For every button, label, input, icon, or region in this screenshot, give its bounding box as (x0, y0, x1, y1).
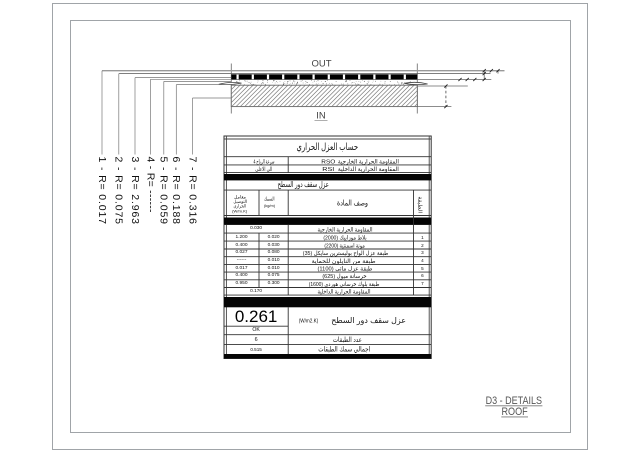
svg-text:RSI: RSI (322, 167, 335, 173)
svg-text:السمك: السمك (264, 197, 275, 203)
svg-text:OUT: OUT (311, 59, 331, 70)
svg-text:المقاومة الحرارية الداخلية: المقاومة الحرارية الداخلية (318, 289, 371, 295)
svg-text:الى الاعلى: الى الاعلى (255, 167, 272, 173)
svg-text:طبقة عزل مائي (1100): طبقة عزل مائي (1100) (318, 266, 374, 272)
svg-text:طبقة عزل الواح بوليسترين سايكل: طبقة عزل الواح بوليسترين سايكل (35) (303, 250, 389, 257)
svg-text:1 - R= 0.017: 1 - R= 0.017 (96, 157, 108, 225)
svg-text:3 - R= 2.963: 3 - R= 2.963 (129, 157, 141, 225)
svg-text:المقاومة الحرارية الخارجية: المقاومة الحرارية الخارجية (338, 159, 399, 165)
svg-text:4 - R= ------: 4 - R= ------ (144, 157, 156, 214)
svg-text:حساب العزل الحراري: حساب العزل الحراري (296, 142, 358, 153)
svg-text:مونة اسمنتية (2200): مونة اسمنتية (2200) (324, 243, 364, 249)
svg-text:7 - R= 0.316: 7 - R= 0.316 (186, 157, 198, 225)
svg-text:(W/m.K): (W/m.K) (232, 210, 248, 214)
svg-text:خرسانة ميول (625): خرسانة ميول (625) (322, 274, 367, 280)
svg-text:الطبقة: الطبقة (417, 197, 423, 214)
svg-text:(kg/m): (kg/m) (264, 204, 276, 208)
svg-text:المقاومة الحرارية الداخلية: المقاومة الحرارية الداخلية (338, 167, 399, 173)
svg-text:الحراري: الحراري (233, 203, 246, 208)
svg-text:RSO: RSO (321, 159, 336, 165)
svg-text:بلاط موزاييك (2000): بلاط موزاييك (2000) (323, 235, 367, 241)
svg-text:سرعة الرياح 4: سرعة الرياح 4 (254, 159, 275, 165)
svg-text:ROOF: ROOF (502, 406, 528, 418)
svg-text:(W/m2.K): (W/m2.K) (299, 319, 319, 325)
svg-text:طبقة من النايلون للحماية: طبقة من النايلون للحماية (312, 259, 377, 265)
svg-text:وصف المادة: وصف المادة (337, 199, 368, 208)
svg-text:اجمالي سمك الطبقات: اجمالي سمك الطبقات (318, 347, 370, 354)
svg-text:المقاومة الحرارية الخارجية: المقاومة الحرارية الخارجية (318, 227, 373, 233)
svg-text:عدد الطبقات: عدد الطبقات (333, 337, 362, 344)
svg-text:IN: IN (316, 110, 326, 121)
svg-text:5 - R= 0.059: 5 - R= 0.059 (158, 157, 170, 225)
svg-text:عزل سقف دور السطح: عزل سقف دور السطح (331, 316, 406, 325)
svg-text:6 - R= 0.188: 6 - R= 0.188 (170, 157, 182, 225)
svg-text:2 - R= 0.075: 2 - R= 0.075 (113, 157, 125, 225)
svg-text:طبقة بلوك خرساني هوردي (1600): طبقة بلوك خرساني هوردي (1600) (309, 282, 380, 288)
svg-text:عزل سقف دور السطح: عزل سقف دور السطح (277, 180, 329, 189)
